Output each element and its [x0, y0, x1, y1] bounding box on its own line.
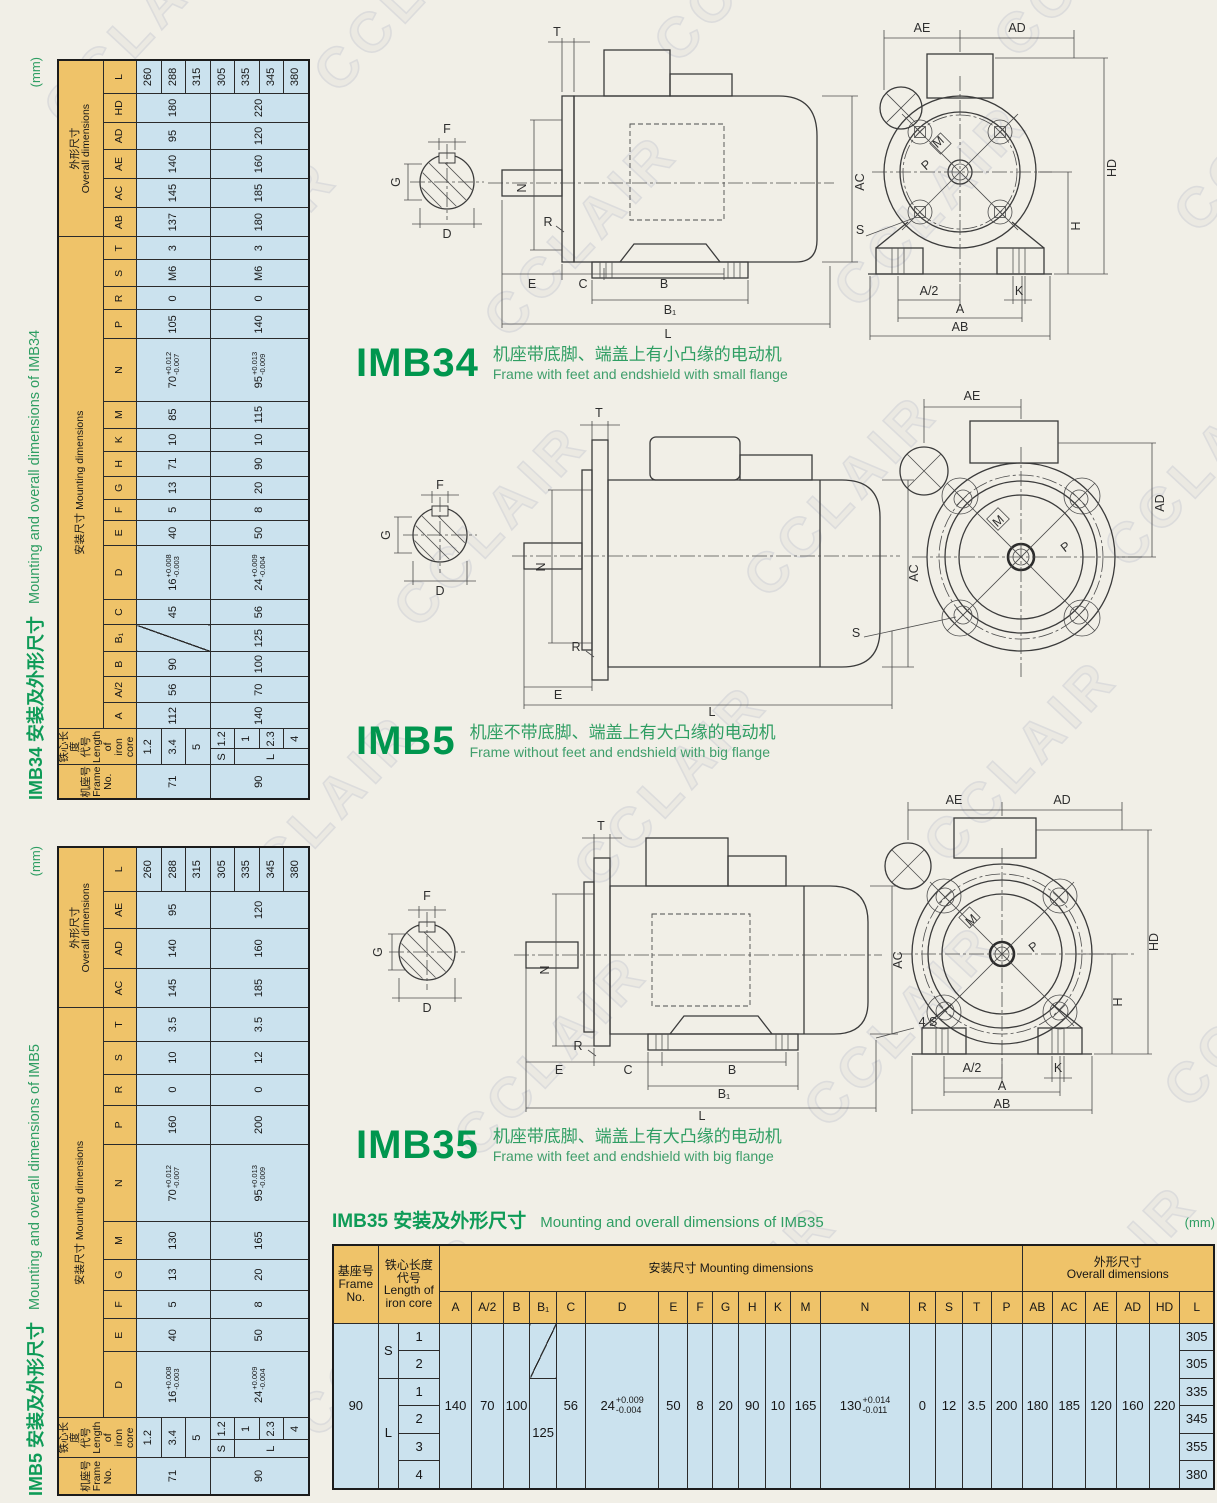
- dim-label: D: [422, 1001, 431, 1015]
- dim-label: S: [852, 626, 860, 640]
- data-cell: 185: [210, 179, 309, 208]
- header-cell: L: [103, 847, 136, 891]
- data-cell: 1: [235, 729, 259, 749]
- dim-label: M: [963, 911, 980, 928]
- data-cell: M6: [137, 260, 210, 287]
- header-cell: S: [936, 1291, 963, 1323]
- data-cell: 288: [161, 60, 185, 93]
- data-cell: 71: [137, 451, 210, 476]
- data-cell: 125: [210, 625, 309, 652]
- header-cell: E: [103, 1319, 136, 1352]
- dim-label: AE: [946, 793, 963, 807]
- data-cell: 220: [1149, 1323, 1180, 1489]
- data-cell: 71: [137, 1458, 210, 1495]
- dim-label: B₁: [664, 303, 677, 317]
- dim-label: K: [1054, 1061, 1063, 1075]
- data-cell: 50: [659, 1323, 688, 1489]
- data-cell: 1.2: [210, 1418, 234, 1440]
- dim-label: R: [571, 640, 580, 654]
- dim-label: B: [728, 1063, 736, 1077]
- header-cell: HD: [1149, 1291, 1180, 1323]
- data-cell: 0: [137, 287, 210, 310]
- imb34-caption-zh: 机座带底脚、端盖上有小凸缘的电动机: [493, 344, 788, 365]
- data-cell: 8: [210, 1290, 309, 1319]
- dim-label: H: [1069, 221, 1083, 230]
- header-cell: B: [103, 652, 136, 677]
- header-cell: 基座号FrameNo.: [333, 1245, 378, 1323]
- header-cell: T: [962, 1291, 991, 1323]
- data-cell: 185: [1053, 1323, 1086, 1489]
- imb35-dimensions-table: 基座号FrameNo.铁心长度代号Length ofiron core安装尺寸 …: [332, 1244, 1215, 1490]
- header-cell: P: [103, 310, 136, 339]
- dim-label: 4 S: [919, 1015, 938, 1029]
- header-cell: H: [103, 451, 136, 476]
- header-cell: S: [103, 260, 136, 287]
- data-cell: 56: [556, 1323, 585, 1489]
- header-cell: M: [103, 401, 136, 428]
- data-cell: 2: [399, 1406, 440, 1434]
- header-cell: AD: [103, 122, 136, 149]
- dim-label: AC: [907, 564, 921, 581]
- header-cell: N: [103, 1145, 136, 1222]
- dim-label: T: [597, 819, 605, 833]
- data-cell: 145: [137, 968, 210, 1008]
- data-cell: 130: [137, 1222, 210, 1259]
- data-cell: 180: [1022, 1323, 1053, 1489]
- header-cell: F: [688, 1291, 713, 1323]
- dim-label: K: [1015, 284, 1024, 298]
- header-cell: B: [503, 1291, 530, 1323]
- data-cell: S: [378, 1323, 399, 1378]
- data-cell: 105: [137, 310, 210, 339]
- data-cell: 335: [235, 847, 259, 891]
- data-cell: 160: [137, 1105, 210, 1145]
- data-cell: 305: [210, 60, 234, 93]
- header-cell: 安装尺寸 Mounting dimensions: [58, 237, 103, 729]
- data-cell: 90: [210, 451, 309, 476]
- dim-label: E: [555, 1063, 563, 1077]
- imb34-side-view: [488, 38, 858, 328]
- data-cell: 20: [210, 476, 309, 499]
- data-cell: 160: [210, 149, 309, 178]
- data-cell: 71: [137, 765, 210, 799]
- dim-label: L: [709, 705, 716, 719]
- header-cell: AC: [103, 179, 136, 208]
- data-cell: 180: [210, 208, 309, 237]
- dim-label: F: [443, 122, 451, 136]
- data-cell: 3.5: [962, 1323, 991, 1489]
- header-cell: HD: [103, 93, 136, 122]
- data-cell: 145: [137, 179, 210, 208]
- header-cell: R: [909, 1291, 936, 1323]
- header-cell: F: [103, 499, 136, 520]
- header-cell: AD: [103, 929, 136, 969]
- imb35-table-title: IMB35 安装及外形尺寸 Mounting and overall dimen…: [332, 1206, 1215, 1233]
- data-cell: 90: [210, 1458, 309, 1495]
- data-cell: 2: [399, 1351, 440, 1379]
- data-cell: 220: [210, 93, 309, 122]
- header-cell: B₁: [103, 625, 136, 652]
- header-cell: T: [103, 237, 136, 260]
- data-cell: 200: [991, 1323, 1022, 1489]
- data-cell: M6: [210, 260, 309, 287]
- data-cell: 40: [137, 1319, 210, 1352]
- data-cell: 380: [284, 847, 309, 891]
- imb5-shaft-section: [394, 491, 477, 585]
- imb34-title-unit: (mm): [28, 57, 43, 87]
- header-cell: AB: [103, 208, 136, 237]
- header-cell: P: [991, 1291, 1022, 1323]
- data-cell: 305: [1180, 1323, 1214, 1351]
- header-cell: A: [440, 1291, 472, 1323]
- header-cell: 外形尺寸Overall dimensions: [58, 60, 103, 237]
- data-cell: 160: [1116, 1323, 1149, 1489]
- dim-label: A/2: [920, 284, 939, 298]
- data-cell: 12: [936, 1323, 963, 1489]
- imb34-title-zh: IMB34 安装及外形尺寸: [22, 616, 48, 800]
- dim-label: S: [856, 223, 864, 237]
- header-cell: L: [1180, 1291, 1214, 1323]
- dim-label: M: [990, 512, 1007, 529]
- imb34-caption: IMB34 机座带底脚、端盖上有小凸缘的电动机 Frame with feet …: [356, 344, 788, 383]
- imb5-dim-labels: FGDTNRELACAEADMPS: [379, 389, 1167, 719]
- header-cell: N: [103, 339, 136, 401]
- imb5-table-container: 机座号Frame No.铁心长度代号Length ofiron core安装尺寸…: [57, 846, 310, 1496]
- data-cell: 315: [186, 60, 210, 93]
- header-cell: D: [585, 1291, 659, 1323]
- data-cell: 70+0.012-0.007: [137, 339, 210, 401]
- data-cell: 1: [399, 1323, 440, 1351]
- imb5-title-zh: IMB5 安装及外形尺寸: [22, 1322, 48, 1496]
- dim-label: HD: [1105, 159, 1119, 177]
- imb35-table-title-en: Mounting and overall dimensions of IMB35: [540, 1214, 824, 1231]
- imb5-caption-en: Frame without feet and endshield with bi…: [470, 743, 776, 761]
- data-cell: 70: [471, 1323, 503, 1489]
- data-cell: L: [235, 749, 309, 765]
- header-cell: R: [103, 1074, 136, 1105]
- dim-label: D: [435, 584, 444, 598]
- dim-label: B₁: [718, 1087, 731, 1101]
- data-cell: 2.3: [259, 729, 283, 749]
- data-cell: 16+0.008-0.003: [137, 545, 210, 599]
- imb34-shaft-section: [404, 138, 484, 228]
- dim-label: L: [665, 327, 672, 341]
- dim-label: C: [578, 277, 587, 291]
- data-cell: 13: [137, 1259, 210, 1290]
- data-cell: 3.5: [137, 1008, 210, 1041]
- data-cell: 120: [210, 891, 309, 928]
- data-cell: 100: [503, 1323, 530, 1489]
- imb5-caption-code: IMB5: [356, 722, 456, 760]
- header-cell: G: [103, 476, 136, 499]
- header-cell: 铁心长度代号Length ofiron core: [378, 1245, 440, 1323]
- data-cell: 3.4: [161, 1418, 185, 1458]
- data-cell: 305: [1180, 1351, 1214, 1379]
- data-cell: 3.5: [210, 1008, 309, 1041]
- dim-label: AB: [952, 320, 969, 334]
- dim-label: A/2: [963, 1061, 982, 1075]
- dim-label: AE: [964, 389, 981, 403]
- data-cell: 335: [235, 60, 259, 93]
- data-cell: 345: [259, 60, 283, 93]
- imb34-vertical-title: IMB34 安装及外形尺寸 Mounting and overall dimen…: [14, 57, 56, 800]
- data-cell: 140: [137, 149, 210, 178]
- header-cell: F: [103, 1290, 136, 1319]
- header-cell: E: [659, 1291, 688, 1323]
- header-cell: M: [103, 1222, 136, 1259]
- dim-label: E: [528, 277, 536, 291]
- header-cell: 外形尺寸Overall dimensions: [58, 847, 103, 1008]
- header-cell: C: [103, 600, 136, 625]
- data-cell: 8: [210, 499, 309, 520]
- data-cell: 95: [137, 122, 210, 149]
- data-cell: S: [210, 1440, 234, 1458]
- data-cell: 335: [1180, 1378, 1214, 1406]
- header-cell: 外形尺寸Overall dimensions: [1022, 1245, 1214, 1291]
- imb35-dim-labels: FGDTNRECBB₁LAC4 SAEADHDHMPA/2KAAB: [371, 793, 1161, 1123]
- header-cell: S: [103, 1041, 136, 1074]
- dim-label: N: [515, 183, 529, 192]
- imb5-dimensions-table: 机座号Frame No.铁心长度代号Length ofiron core安装尺寸…: [57, 846, 310, 1496]
- imb34-drawing: FGDTNRECBB₁LACAEADHDHMPSA/2KAAB: [352, 12, 1214, 344]
- data-cell: 5: [186, 729, 210, 765]
- header-cell: 铁心长度代号Length ofiron core: [58, 1418, 137, 1458]
- data-cell: 140: [210, 703, 309, 729]
- data-cell: [530, 1323, 557, 1378]
- imb35-caption-zh: 机座带底脚、端盖上有大凸缘的电动机: [493, 1126, 782, 1147]
- header-cell: K: [103, 428, 136, 451]
- header-cell: H: [739, 1291, 766, 1323]
- data-cell: 24+0.009-0.004: [210, 545, 309, 599]
- dim-label: AB: [994, 1097, 1011, 1111]
- dim-label: N: [538, 965, 552, 974]
- dim-label: T: [595, 406, 603, 420]
- data-cell: 1: [235, 1418, 259, 1440]
- dim-label: R: [573, 1039, 582, 1053]
- header-cell: 安装尺寸 Mounting dimensions: [58, 1008, 103, 1418]
- data-cell: 10: [137, 428, 210, 451]
- imb34-title-en: Mounting and overall dimensions of IMB34: [27, 330, 43, 604]
- imb35-caption: IMB35 机座带底脚、端盖上有大凸缘的电动机 Frame with feet …: [356, 1126, 782, 1165]
- imb5-title-en: Mounting and overall dimensions of IMB5: [27, 1044, 43, 1310]
- header-cell: P: [103, 1105, 136, 1145]
- data-cell: 355: [1180, 1433, 1214, 1461]
- imb34-caption-en: Frame with feet and endshield with small…: [493, 365, 788, 383]
- dim-label: AD: [1053, 793, 1070, 807]
- data-cell: 70+0.012-0.007: [137, 1145, 210, 1222]
- dim-label: AC: [853, 173, 867, 190]
- data-cell: 20: [712, 1323, 739, 1489]
- data-cell: 56: [210, 600, 309, 625]
- imb35-table-title-unit: (mm): [1185, 1215, 1215, 1230]
- dim-label: G: [379, 530, 393, 540]
- data-cell: 24+0.009-0.004: [585, 1323, 659, 1489]
- header-cell: AE: [1086, 1291, 1117, 1323]
- data-cell: 8: [688, 1323, 713, 1489]
- header-cell: T: [103, 1008, 136, 1041]
- imb5-caption-zh: 机座不带底脚、端盖上有大凸缘的电动机: [470, 722, 776, 743]
- dim-label: N: [534, 562, 548, 571]
- data-cell: 185: [210, 968, 309, 1008]
- data-cell: 10: [766, 1323, 791, 1489]
- data-cell: 5: [137, 499, 210, 520]
- dim-label: AC: [891, 951, 905, 968]
- imb35-side-view: [514, 834, 914, 1112]
- data-cell: 4: [399, 1461, 440, 1490]
- data-cell: 288: [161, 847, 185, 891]
- data-cell: S: [210, 749, 234, 765]
- data-cell: 4: [284, 729, 309, 749]
- header-cell: AC: [103, 968, 136, 1008]
- dim-label: L: [699, 1109, 706, 1123]
- data-cell: 260: [137, 60, 161, 93]
- header-cell: AE: [103, 149, 136, 178]
- data-cell: 2.3: [259, 1418, 283, 1440]
- data-cell: 165: [790, 1323, 821, 1489]
- imb34-dimensions-table: 机座号Frame No.铁心长度代号Length ofiron core安装尺寸…: [57, 59, 310, 800]
- imb35-table-title-zh: IMB35 安装及外形尺寸: [332, 1206, 526, 1233]
- imb35-front-view: [885, 802, 1152, 1114]
- dim-label: P: [1026, 939, 1041, 955]
- dim-label: F: [436, 478, 444, 492]
- data-cell: 345: [259, 847, 283, 891]
- dim-label: R: [543, 215, 552, 229]
- dim-label: P: [919, 157, 935, 173]
- data-cell: [137, 625, 210, 652]
- header-cell: N: [821, 1291, 909, 1323]
- dim-label: F: [423, 889, 431, 903]
- data-cell: 4: [284, 1418, 309, 1440]
- data-cell: 5: [137, 1290, 210, 1319]
- header-cell: AD: [1116, 1291, 1149, 1323]
- data-cell: 5: [186, 1418, 210, 1458]
- dim-label: T: [553, 25, 561, 39]
- header-cell: R: [103, 287, 136, 310]
- header-cell: C: [556, 1291, 585, 1323]
- data-cell: 90: [333, 1323, 378, 1489]
- header-cell: 机座号Frame No.: [58, 1458, 137, 1495]
- imb34-front-view: [866, 30, 1108, 340]
- imb35-caption-en: Frame with feet and endshield with big f…: [493, 1147, 782, 1165]
- data-cell: 120: [210, 122, 309, 149]
- data-cell: 0: [909, 1323, 936, 1489]
- header-cell: B₁: [530, 1291, 557, 1323]
- data-cell: 70: [210, 677, 309, 703]
- data-cell: L: [235, 1440, 309, 1458]
- data-cell: 3: [137, 237, 210, 260]
- data-cell: 130+0.014-0.011: [821, 1323, 909, 1489]
- header-cell: A/2: [471, 1291, 503, 1323]
- imb5-drawing: FGDTNRELACAEADMPS: [352, 385, 1214, 719]
- data-cell: L: [378, 1378, 399, 1489]
- imb34-caption-code: IMB34: [356, 344, 479, 382]
- dim-label: AD: [1153, 494, 1167, 511]
- catalog-page: CCLAIRCCLAIRCCLAIRCCLAIRCCLAIRCCLAIRCCLA…: [0, 0, 1217, 1503]
- data-cell: 115: [210, 401, 309, 428]
- data-cell: 1: [399, 1378, 440, 1406]
- imb5-side-view: [512, 421, 914, 709]
- data-cell: 140: [210, 310, 309, 339]
- header-cell: D: [103, 545, 136, 599]
- data-cell: 95+0.013-0.009: [210, 1145, 309, 1222]
- data-cell: 100: [210, 652, 309, 677]
- data-cell: 50: [210, 520, 309, 545]
- dim-label: HD: [1147, 933, 1161, 951]
- dim-label: AE: [914, 21, 931, 35]
- data-cell: 140: [440, 1323, 472, 1489]
- data-cell: 200: [210, 1105, 309, 1145]
- data-cell: 0: [137, 1074, 210, 1105]
- data-cell: 380: [1180, 1461, 1214, 1490]
- header-cell: G: [103, 1259, 136, 1290]
- dim-label: AD: [1008, 21, 1025, 35]
- data-cell: 1.2: [137, 729, 161, 765]
- dim-label: G: [371, 947, 385, 957]
- header-cell: 机座号Frame No.: [58, 765, 137, 799]
- dim-label: A: [998, 1079, 1007, 1093]
- data-cell: 12: [210, 1041, 309, 1074]
- dim-label: G: [389, 177, 403, 187]
- header-cell: G: [712, 1291, 739, 1323]
- data-cell: 20: [210, 1259, 309, 1290]
- dim-label: P: [1058, 539, 1073, 555]
- data-cell: 3.4: [161, 729, 185, 765]
- imb35-caption-code: IMB35: [356, 1126, 479, 1164]
- data-cell: 45: [137, 600, 210, 625]
- data-cell: 3: [399, 1433, 440, 1461]
- data-cell: 56: [137, 677, 210, 703]
- data-cell: 16+0.008-0.003: [137, 1352, 210, 1418]
- header-cell: 铁心长度代号Length ofiron core: [58, 729, 137, 765]
- dim-label: A: [956, 302, 965, 316]
- data-cell: 1.2: [210, 729, 234, 749]
- data-cell: 120: [1086, 1323, 1117, 1489]
- data-cell: 180: [137, 93, 210, 122]
- data-cell: 160: [210, 929, 309, 969]
- header-cell: M: [790, 1291, 821, 1323]
- imb35-table-container: 基座号FrameNo.铁心长度代号Length ofiron core安装尺寸 …: [332, 1244, 1215, 1490]
- data-cell: 90: [137, 652, 210, 677]
- header-cell: 安装尺寸 Mounting dimensions: [440, 1245, 1022, 1291]
- header-cell: D: [103, 1352, 136, 1418]
- header-cell: A: [103, 703, 136, 729]
- data-cell: 90: [739, 1323, 766, 1489]
- data-cell: 0: [210, 1074, 309, 1105]
- data-cell: 40: [137, 520, 210, 545]
- data-cell: 10: [210, 428, 309, 451]
- dim-label: E: [554, 688, 562, 702]
- data-cell: 380: [284, 60, 309, 93]
- data-cell: 85: [137, 401, 210, 428]
- data-cell: 13: [137, 476, 210, 499]
- dim-label: B: [660, 277, 668, 291]
- dim-label: D: [442, 227, 451, 241]
- data-cell: 315: [186, 847, 210, 891]
- data-cell: 3: [210, 237, 309, 260]
- data-cell: 140: [137, 929, 210, 969]
- data-cell: 95+0.013-0.009: [210, 339, 309, 401]
- header-cell: L: [103, 60, 136, 93]
- dim-label: M: [930, 133, 947, 150]
- header-cell: A/2: [103, 677, 136, 703]
- data-cell: 50: [210, 1319, 309, 1352]
- header-cell: E: [103, 520, 136, 545]
- imb34-dim-labels: FGDTNRECBB₁LACAEADHDHMPSA/2KAAB: [389, 21, 1119, 341]
- imb34-table-container: 机座号Frame No.铁心长度代号Length ofiron core安装尺寸…: [57, 59, 310, 800]
- data-cell: 125: [530, 1378, 557, 1489]
- data-cell: 24+0.009-0.004: [210, 1352, 309, 1418]
- imb35-drawing: FGDTNRECBB₁LAC4 SAEADHDHMPA/2KAAB: [352, 790, 1214, 1124]
